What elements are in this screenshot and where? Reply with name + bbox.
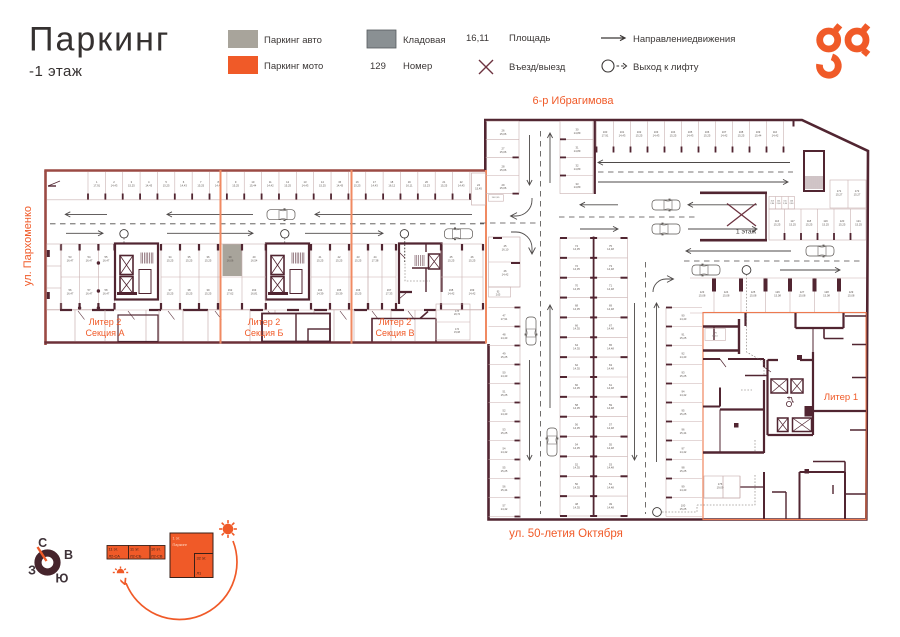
svg-text:Л2-СБ: Л2-СБ <box>130 554 142 559</box>
svg-text:Л2-СА: Л2-СА <box>109 554 121 559</box>
svg-text:32 эт.: 32 эт. <box>197 556 207 561</box>
svg-text:1 этаж: 1 этаж <box>736 229 757 236</box>
svg-text:Литер 2Секция А: Литер 2Секция А <box>85 317 124 338</box>
svg-text:16,11: 16,11 <box>466 33 489 44</box>
svg-text:Паркинг мото: Паркинг мото <box>264 61 323 72</box>
svg-text:Паркинг: Паркинг <box>173 542 188 547</box>
svg-text:Литер 2Секция Б: Литер 2Секция Б <box>245 317 284 338</box>
svg-text:Литер 1: Литер 1 <box>824 392 858 403</box>
svg-text:Паркинг: Паркинг <box>29 21 170 59</box>
svg-text:Л2-СВ: Л2-СВ <box>151 554 163 559</box>
svg-text:ул. Пархоменко: ул. Пархоменко <box>22 206 34 286</box>
svg-text:Паркинг авто: Паркинг авто <box>264 35 322 46</box>
svg-text:Площадь: Площадь <box>509 33 550 44</box>
svg-text:1 эт.: 1 эт. <box>173 536 181 541</box>
svg-text:Литер 2Секция В: Литер 2Секция В <box>375 317 414 338</box>
svg-text:ул. 50-летия Октября: ул. 50-летия Октября <box>509 528 623 540</box>
svg-text:110 2,65: 110 2,65 <box>492 197 501 199</box>
svg-text:-1 этаж: -1 этаж <box>29 63 82 80</box>
svg-text:Въезд/выезд: Въезд/выезд <box>509 62 566 73</box>
svg-text:Л1: Л1 <box>197 571 202 576</box>
svg-text:Направлениедвижения: Направлениедвижения <box>633 34 735 45</box>
svg-text:Номер: Номер <box>403 61 432 72</box>
svg-text:6-р Ибрагимова: 6-р Ибрагимова <box>532 95 614 107</box>
svg-text:Кладовая: Кладовая <box>403 35 446 46</box>
svg-text:С: С <box>38 536 47 550</box>
svg-text:В: В <box>64 548 73 562</box>
svg-text:10 эт.: 10 эт. <box>151 547 161 552</box>
svg-text:З: З <box>28 564 36 578</box>
svg-text:Выход к лифту: Выход к лифту <box>633 62 699 73</box>
svg-text:11 эт.: 11 эт. <box>109 547 118 552</box>
svg-text:129: 129 <box>370 61 386 72</box>
svg-text:11 эт.: 11 эт. <box>130 547 139 552</box>
svg-text:Ю: Ю <box>56 572 69 586</box>
